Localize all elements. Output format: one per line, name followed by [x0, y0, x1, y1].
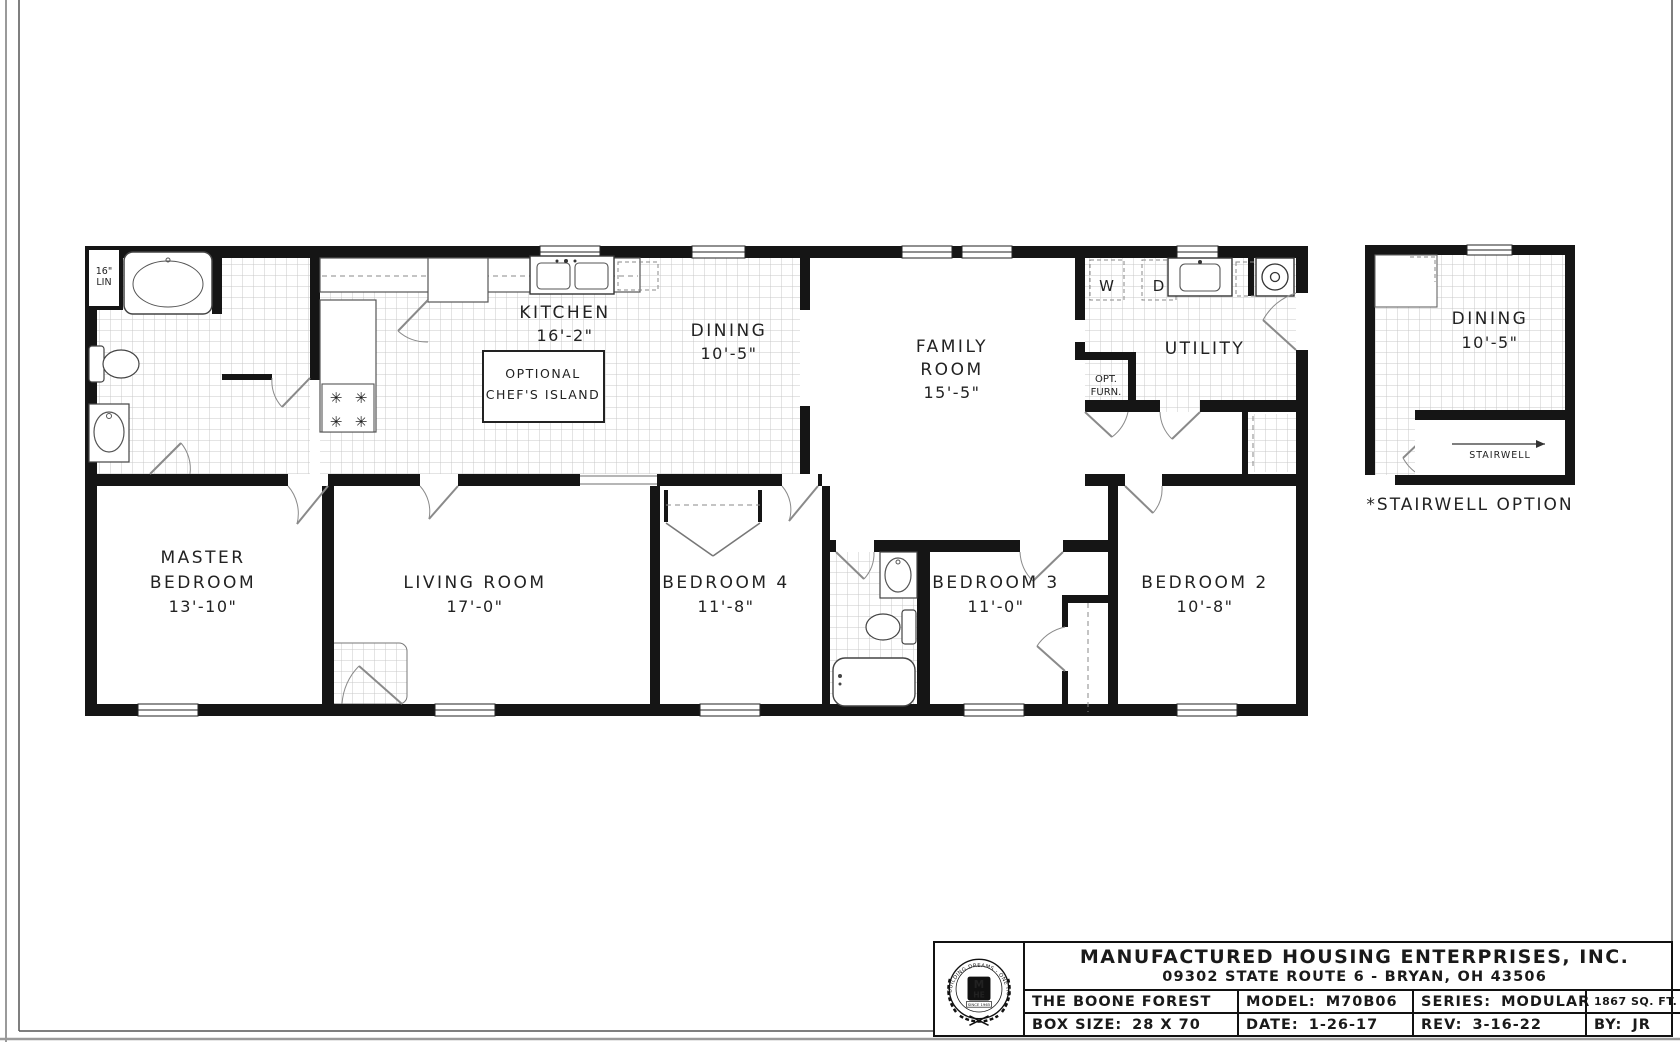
sheet-border — [0, 0, 1680, 1042]
plan-name: THE BOONE FOREST — [1025, 991, 1237, 1012]
title-block-fields: MANUFACTURED HOUSING ENTERPRISES, INC. 0… — [1025, 943, 1680, 1035]
stairwell-dining-dim: 10'-5" — [1461, 333, 1518, 352]
island-label-1: OPTIONAL — [505, 366, 580, 381]
svg-text:✳: ✳ — [330, 389, 343, 407]
living-room-dim: 17'-0" — [446, 597, 503, 616]
box-size-value: 28 X 70 — [1132, 1017, 1201, 1033]
family-room-dim: 15'-5" — [923, 383, 980, 402]
utility-sink — [1168, 258, 1232, 296]
logo-monogram-bottom: HE — [973, 991, 985, 1000]
stairwell-dining-label: DINING — [1452, 309, 1529, 329]
master-bedroom-label-2: BEDROOM — [150, 573, 256, 593]
date-cell: DATE: 1-26-17 — [1237, 1014, 1412, 1035]
dining-label: DINING — [691, 321, 768, 341]
water-heater — [1256, 258, 1294, 296]
svg-text:✳: ✳ — [330, 413, 343, 431]
bedroom4-label: BEDROOM 4 — [662, 573, 789, 593]
dryer-label: D — [1153, 277, 1166, 295]
linen-label-2: LIN — [96, 277, 111, 288]
refrigerator — [428, 258, 488, 302]
stairwell-cabinet — [1375, 255, 1437, 307]
svg-text:✳: ✳ — [355, 413, 368, 431]
title-block-row-2: BOX SIZE: 28 X 70 DATE: 1-26-17 REV: 3-1… — [1025, 1012, 1680, 1035]
box-size-label: BOX SIZE: — [1032, 1017, 1122, 1033]
family-room-label-1: FAMILY — [916, 337, 988, 357]
title-block-header: MANUFACTURED HOUSING ENTERPRISES, INC. 0… — [1025, 943, 1680, 991]
company-name: MANUFACTURED HOUSING ENTERPRISES, INC. — [1080, 947, 1630, 968]
floor-plan-drawing: ✳✳ ✳✳ — [0, 0, 1680, 1042]
model-cell: MODEL: M70B06 — [1237, 991, 1412, 1012]
exterior-door-opening — [1296, 293, 1308, 350]
title-block: BUILDING DREAMS - ONE HOME AT A TIME M H… — [933, 941, 1673, 1037]
company-logo: BUILDING DREAMS - ONE HOME AT A TIME M H… — [935, 943, 1025, 1035]
cased-opening — [580, 476, 657, 484]
title-block-row-1: THE BOONE FOREST MODEL: M70B06 SERIES: M… — [1025, 991, 1680, 1012]
master-bedroom-dim: 13'-10" — [169, 597, 238, 616]
kitchen-sink — [530, 256, 614, 294]
dining-dim: 10'-5" — [700, 344, 757, 363]
opt-furn-label-1: OPT. — [1095, 374, 1117, 385]
bedroom3-dim: 11'-0" — [967, 597, 1024, 616]
logo-monogram-top: M — [974, 979, 984, 991]
living-room-label: LIVING ROOM — [403, 573, 546, 593]
master-bedroom-label-1: MASTER — [160, 548, 245, 568]
opt-furn-label-2: FURN. — [1091, 387, 1122, 398]
stairwell-option-caption: *STAIRWELL OPTION — [1366, 495, 1573, 515]
rev-value: 3-16-22 — [1472, 1017, 1541, 1033]
by-label: BY: — [1594, 1017, 1622, 1033]
range: ✳✳ ✳✳ — [322, 384, 374, 432]
stairwell-label: STAIRWELL — [1469, 450, 1531, 461]
linen-label-1: 16" — [96, 266, 112, 277]
vanity-sink — [89, 404, 129, 462]
square-footage: 1867 SQ. FT. — [1585, 991, 1680, 1012]
bedroom2-dim: 10'-8" — [1176, 597, 1233, 616]
svg-text:✳: ✳ — [355, 389, 368, 407]
stairwell-corridor — [1415, 420, 1565, 475]
series-label: SERIES: — [1421, 994, 1491, 1010]
bedroom4-dim: 11'-8" — [697, 597, 754, 616]
series-cell: SERIES: MODULAR — [1412, 991, 1585, 1012]
date-value: 1-26-17 — [1309, 1017, 1378, 1033]
model-label: MODEL: — [1246, 994, 1316, 1010]
washer-label: W — [1099, 277, 1115, 295]
series-value: MODULAR — [1501, 994, 1590, 1010]
family-room-label-2: ROOM — [920, 360, 983, 380]
floor-plan-sheet: ✳✳ ✳✳ — [0, 0, 1680, 1042]
island-label-2: CHEF'S ISLAND — [486, 387, 600, 402]
kitchen-label: KITCHEN — [519, 303, 610, 323]
by-value: JR — [1632, 1017, 1651, 1033]
utility-label: UTILITY — [1165, 339, 1246, 359]
kitchen-dim: 16'-2" — [536, 326, 593, 345]
rev-cell: REV: 3-16-22 — [1412, 1014, 1585, 1035]
box-size-cell: BOX SIZE: 28 X 70 — [1025, 1014, 1237, 1035]
mhe-logo-icon: BUILDING DREAMS - ONE HOME AT A TIME M H… — [935, 944, 1023, 1034]
bedroom2-label: BEDROOM 2 — [1141, 573, 1268, 593]
hall-bath-sink — [880, 552, 917, 598]
date-label: DATE: — [1246, 1017, 1299, 1033]
logo-since-text: SINCE 1965 — [968, 1002, 991, 1007]
model-value: M70B06 — [1326, 994, 1398, 1010]
bathtub — [124, 252, 212, 314]
company-address: 09302 STATE ROUTE 6 - BRYAN, OH 43506 — [1162, 969, 1547, 985]
by-cell: BY: JR — [1585, 1014, 1680, 1035]
hall-bath-tub — [833, 658, 915, 706]
bedroom3-label: BEDROOM 3 — [932, 573, 1059, 593]
rev-label: REV: — [1421, 1017, 1462, 1033]
